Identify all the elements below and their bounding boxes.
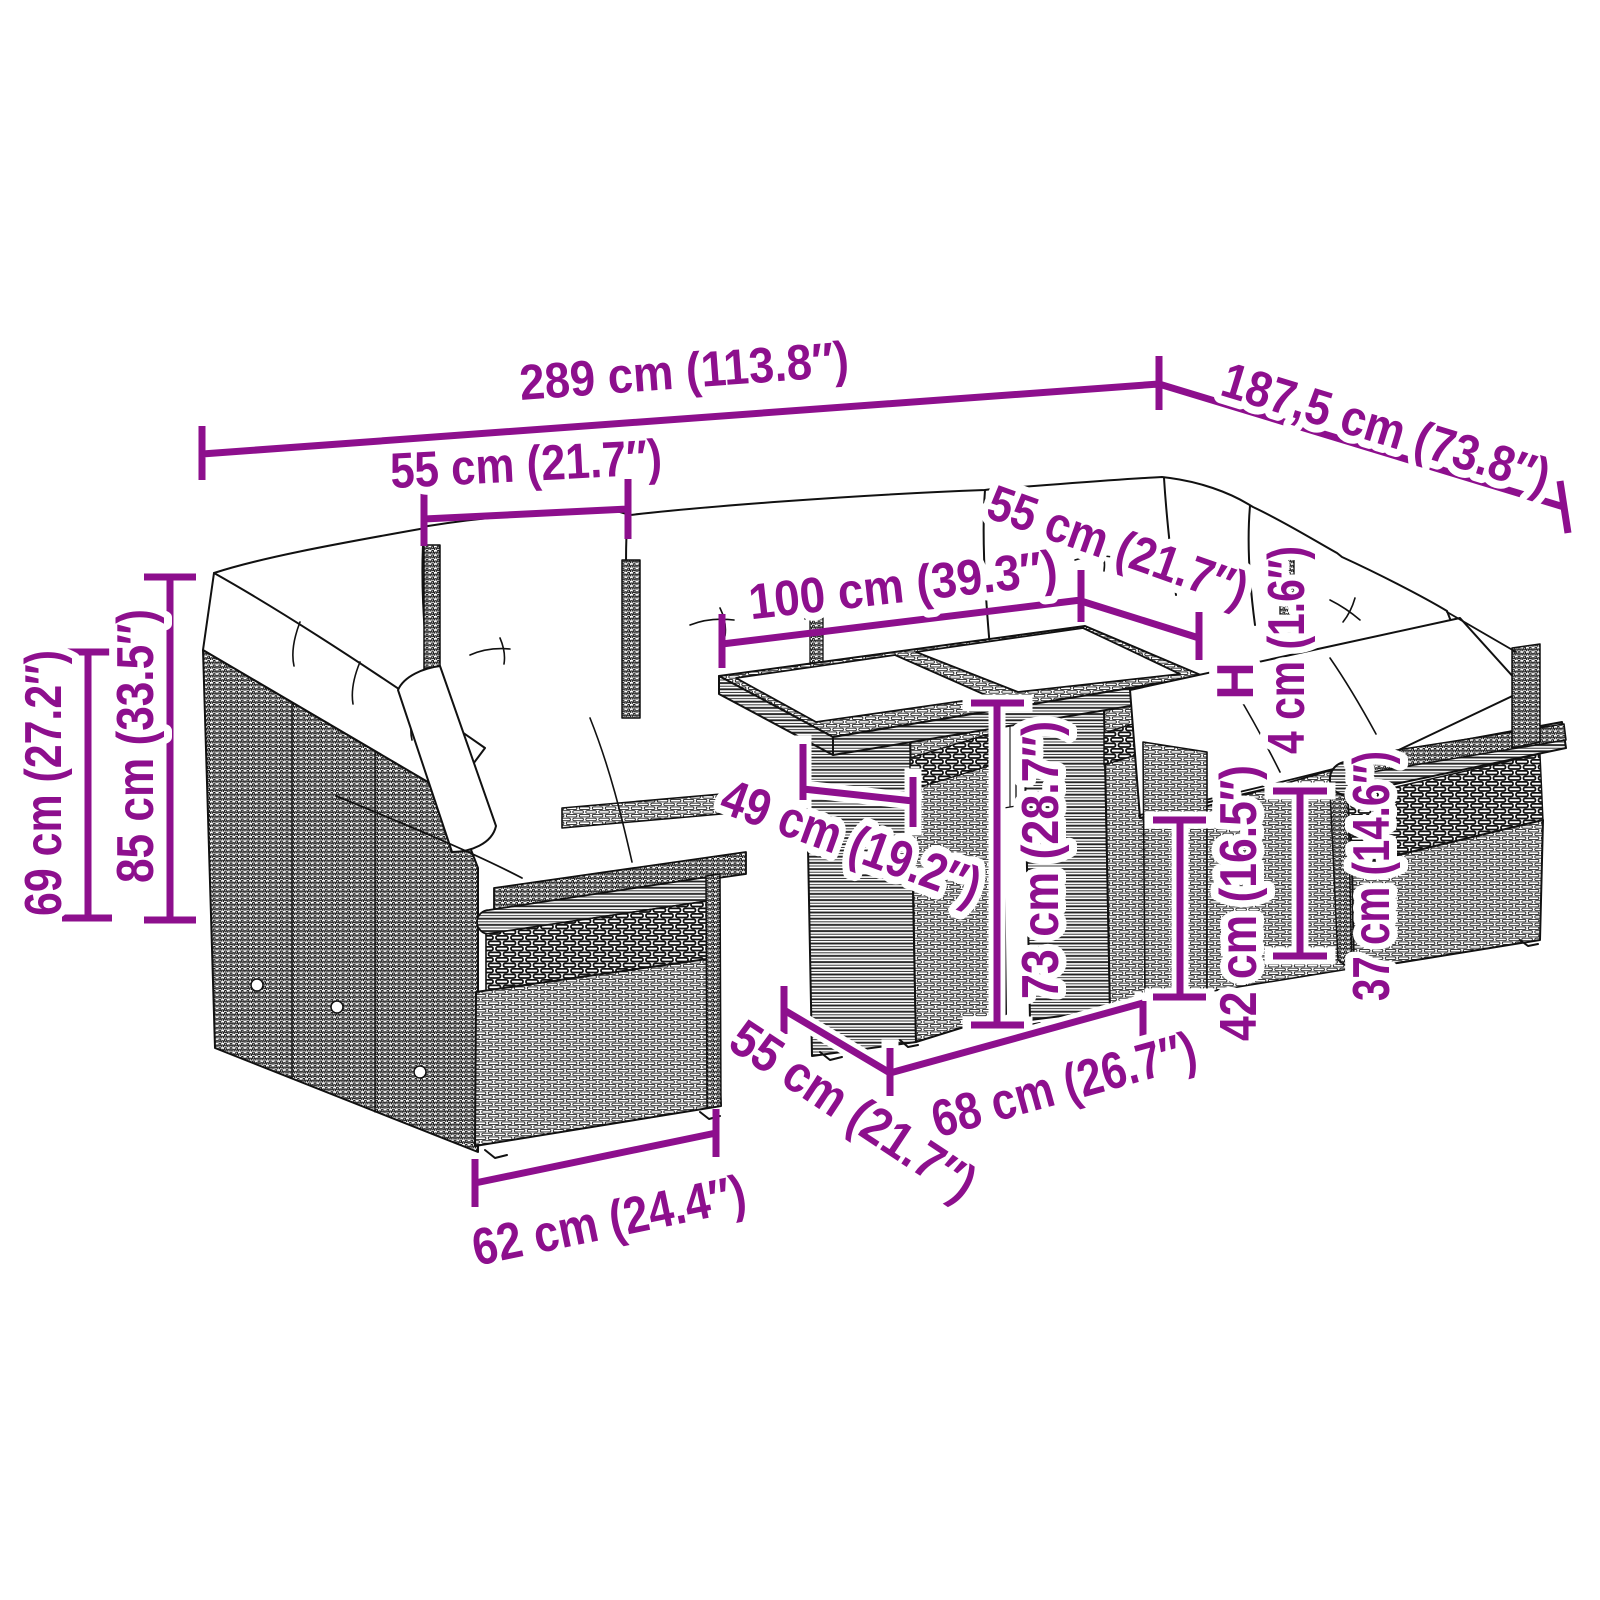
svg-text:69 cm (27.2″): 69 cm (27.2″)	[15, 650, 73, 916]
svg-text:73 cm (28.7″): 73 cm (28.7″)	[1012, 721, 1070, 999]
svg-text:H: H	[1207, 662, 1265, 700]
svg-text:85 cm (33.5″): 85 cm (33.5″)	[107, 609, 165, 883]
svg-text:4 cm (1.6″): 4 cm (1.6″)	[1258, 546, 1316, 754]
svg-text:37 cm (14.6″): 37 cm (14.6″)	[1343, 751, 1401, 1001]
svg-text:42 cm (16.5″): 42 cm (16.5″)	[1210, 765, 1268, 1041]
